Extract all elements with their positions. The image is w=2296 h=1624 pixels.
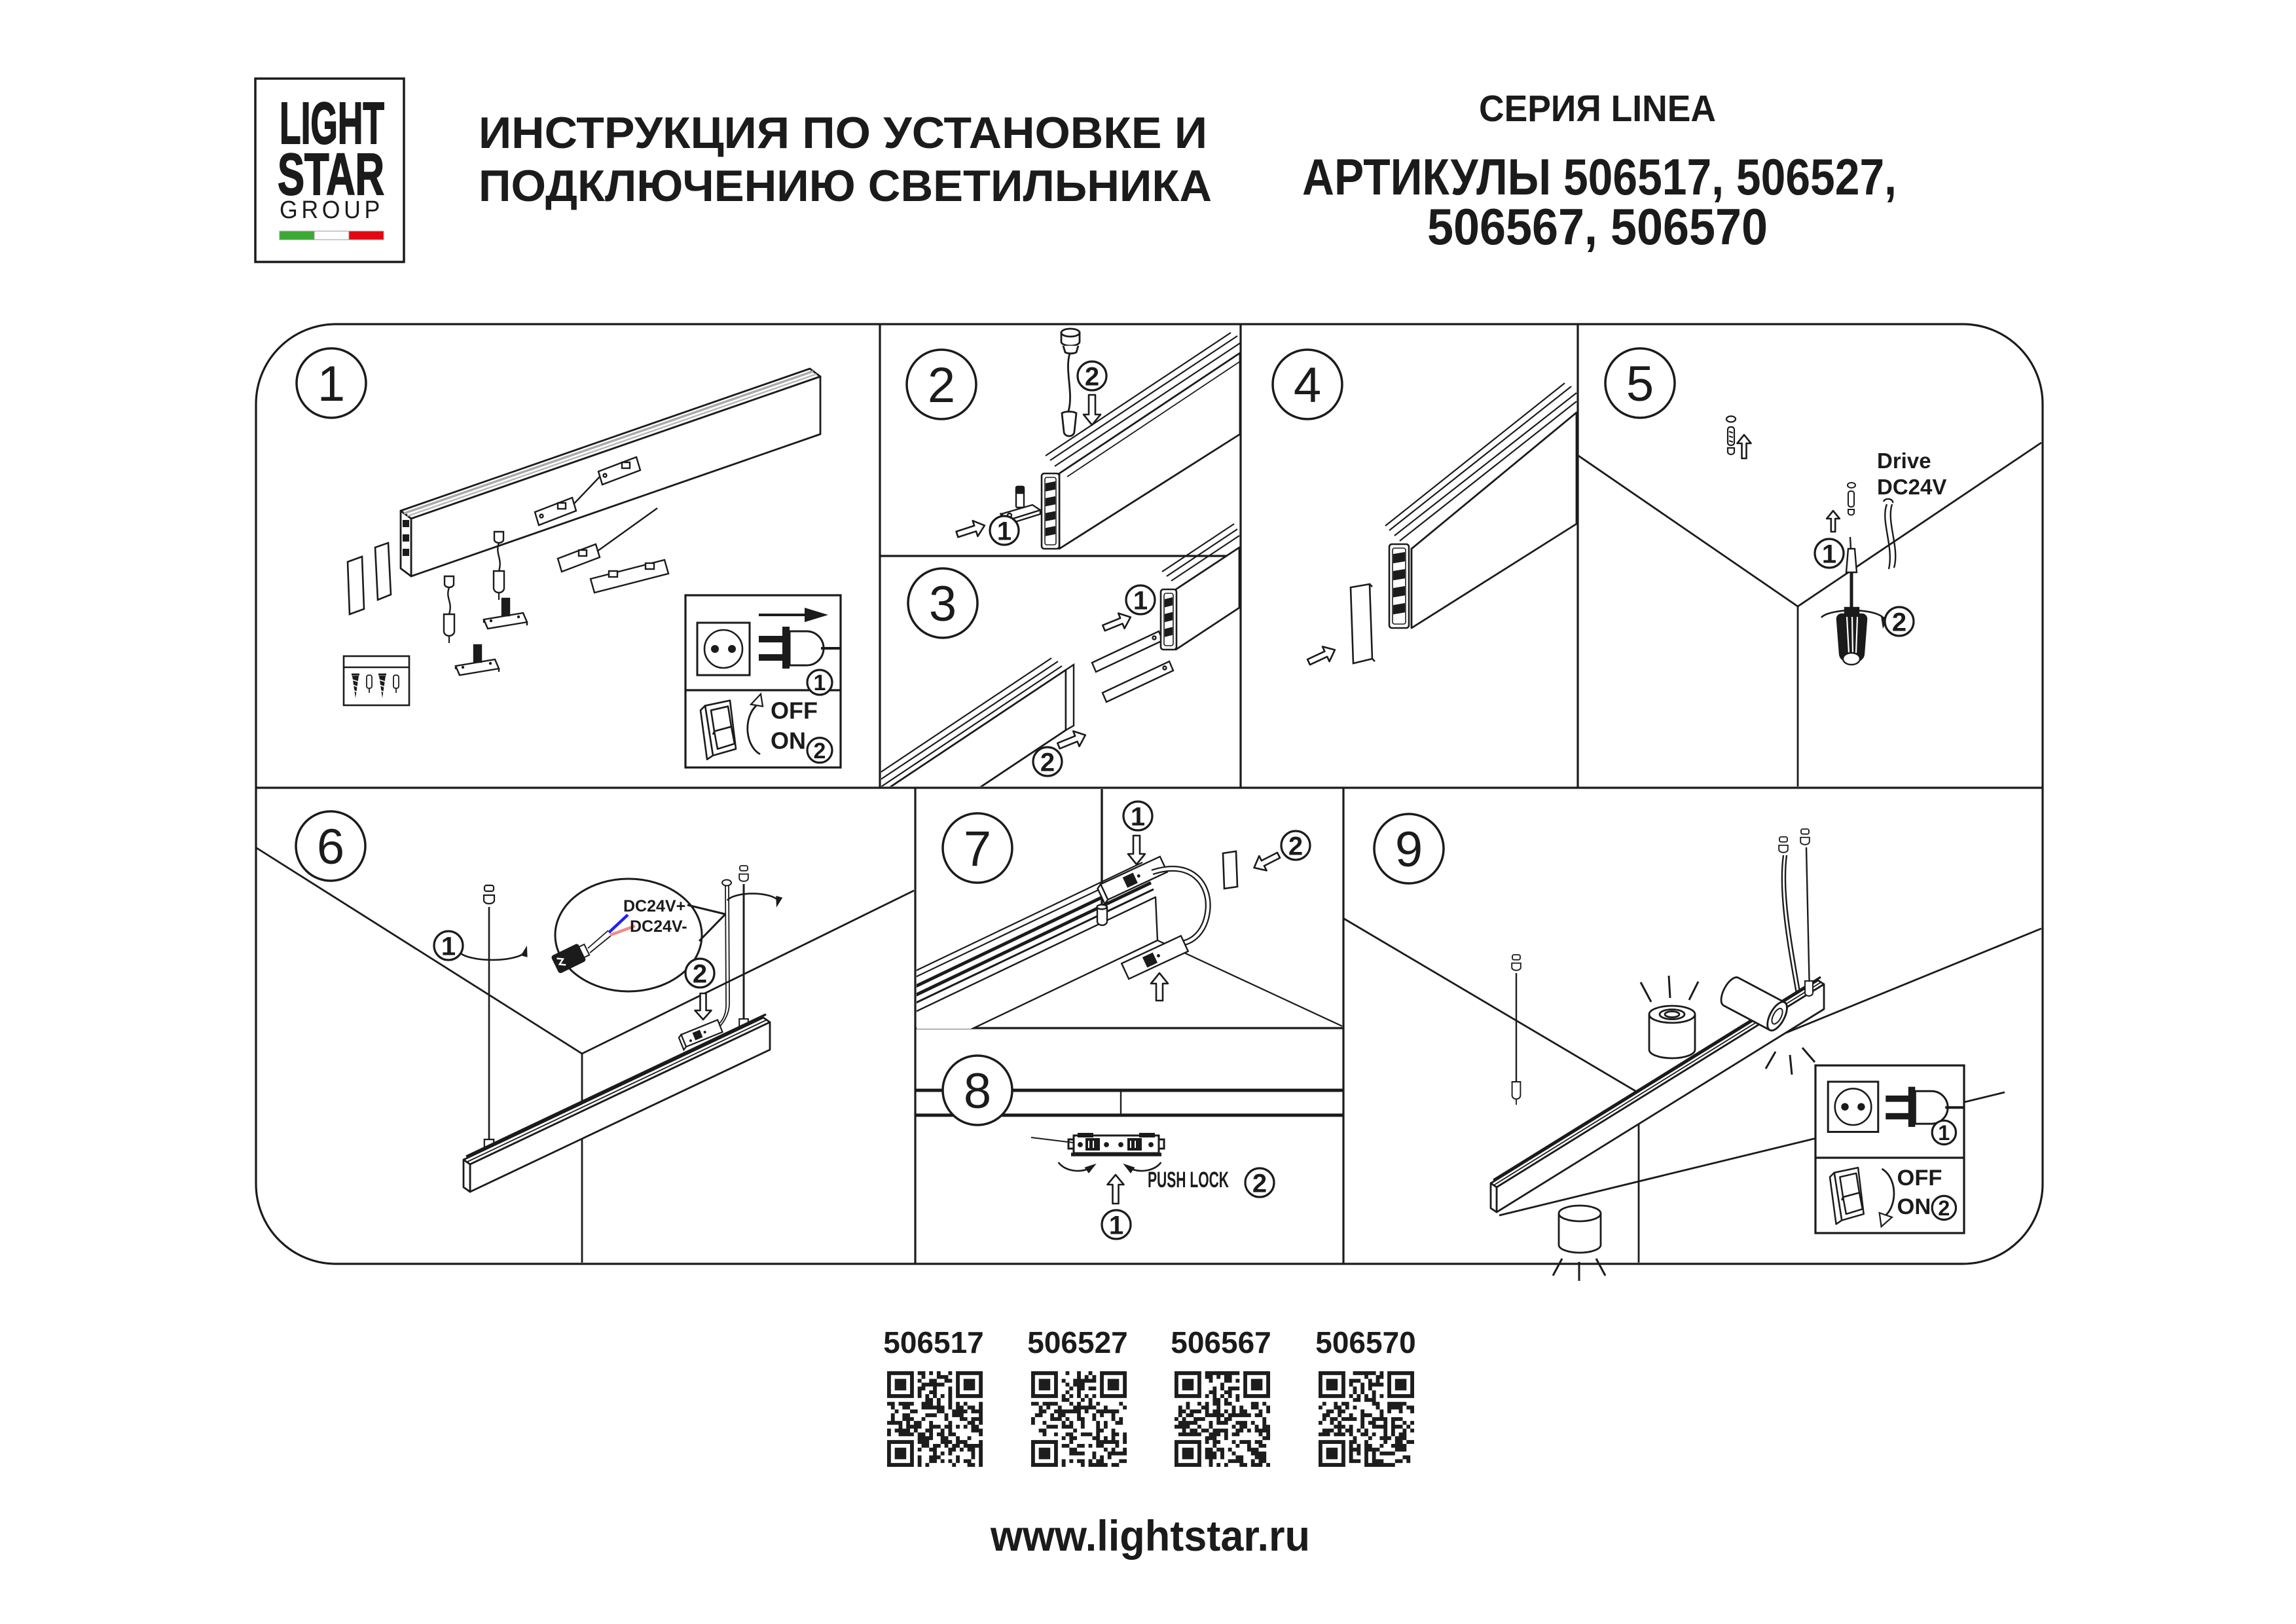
- svg-text:www.lightstar.ru: www.lightstar.ru: [990, 1511, 1310, 1560]
- svg-text:2: 2: [1892, 608, 1906, 637]
- svg-text:1: 1: [318, 356, 345, 412]
- svg-text:5: 5: [1626, 356, 1654, 412]
- svg-text:9: 9: [1395, 822, 1423, 877]
- svg-text:ПОДКЛЮЧЕНИЮ СВЕТИЛЬНИКА: ПОДКЛЮЧЕНИЮ СВЕТИЛЬНИКА: [479, 161, 1212, 211]
- svg-text:1: 1: [1133, 586, 1148, 615]
- svg-text:DC24V+: DC24V+: [623, 897, 685, 915]
- svg-text:2: 2: [1288, 832, 1303, 860]
- svg-text:OFF: OFF: [771, 697, 818, 724]
- svg-text:1: 1: [1131, 802, 1145, 831]
- svg-text:Drive: Drive: [1877, 449, 1931, 473]
- svg-text:1: 1: [441, 932, 456, 961]
- svg-text:ИНСТРУКЦИЯ ПО УСТАНОВКЕ И: ИНСТРУКЦИЯ ПО УСТАНОВКЕ И: [479, 108, 1207, 158]
- svg-text:2: 2: [928, 358, 955, 413]
- svg-text:8: 8: [964, 1063, 991, 1119]
- svg-text:2: 2: [1938, 1196, 1950, 1220]
- svg-text:DC24V: DC24V: [1877, 475, 1946, 499]
- svg-text:2: 2: [814, 739, 826, 764]
- svg-text:1: 1: [997, 517, 1011, 545]
- svg-text:DC24V-: DC24V-: [630, 917, 687, 936]
- svg-text:2: 2: [1040, 748, 1055, 777]
- svg-text:7: 7: [964, 821, 991, 877]
- svg-text:506517: 506517: [883, 1325, 984, 1359]
- svg-text:OFF: OFF: [1897, 1166, 1942, 1190]
- svg-text:1: 1: [1938, 1121, 1950, 1145]
- svg-text:1: 1: [1822, 540, 1836, 568]
- svg-text:506527: 506527: [1027, 1325, 1128, 1359]
- svg-text:2: 2: [693, 959, 707, 988]
- svg-text:4: 4: [1294, 358, 1321, 413]
- svg-text:1: 1: [814, 671, 826, 695]
- svg-text:506567, 506570: 506567, 506570: [1427, 198, 1768, 255]
- svg-text:1: 1: [1109, 1211, 1123, 1240]
- svg-text:PUSH LOCK: PUSH LOCK: [1148, 1168, 1229, 1192]
- svg-text:ON: ON: [1897, 1194, 1931, 1219]
- svg-text:3: 3: [929, 576, 957, 632]
- svg-text:АРТИКУЛЫ 506517, 506527,: АРТИКУЛЫ 506517, 506527,: [1302, 148, 1897, 206]
- svg-text:6: 6: [317, 819, 344, 875]
- svg-text:2: 2: [1085, 362, 1099, 391]
- svg-text:2: 2: [1252, 1169, 1267, 1198]
- svg-text:506567: 506567: [1171, 1325, 1271, 1359]
- svg-text:СЕРИЯ LINEA: СЕРИЯ LINEA: [1479, 88, 1716, 130]
- svg-text:ON: ON: [771, 728, 806, 754]
- svg-text:506570: 506570: [1315, 1325, 1416, 1359]
- svg-text:GROUP: GROUP: [280, 196, 384, 224]
